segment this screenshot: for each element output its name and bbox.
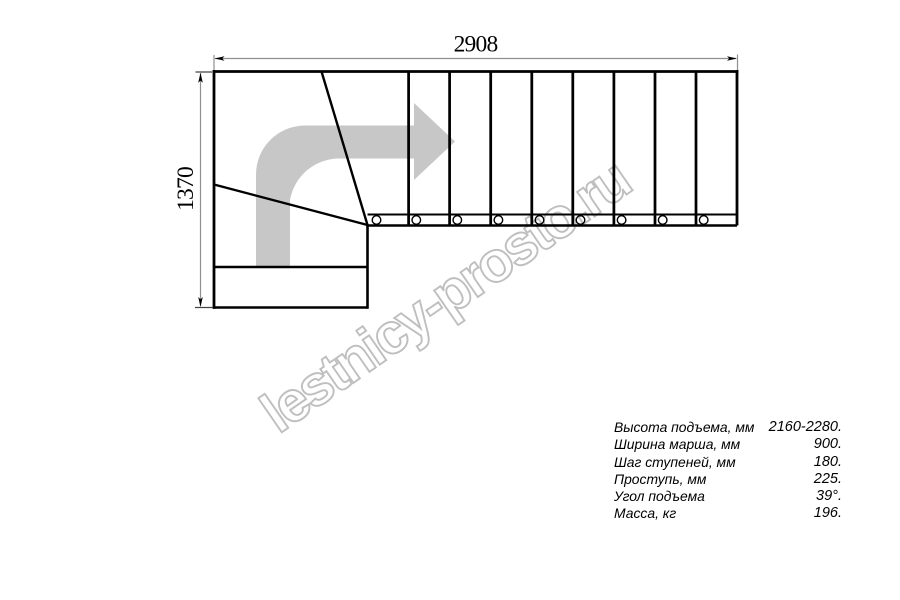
svg-text:1370: 1370 [173,167,199,211]
svg-text:2908: 2908 [454,32,498,58]
svg-text:lestnicy-prosto.ru: lestnicy-prosto.ru [250,146,644,445]
